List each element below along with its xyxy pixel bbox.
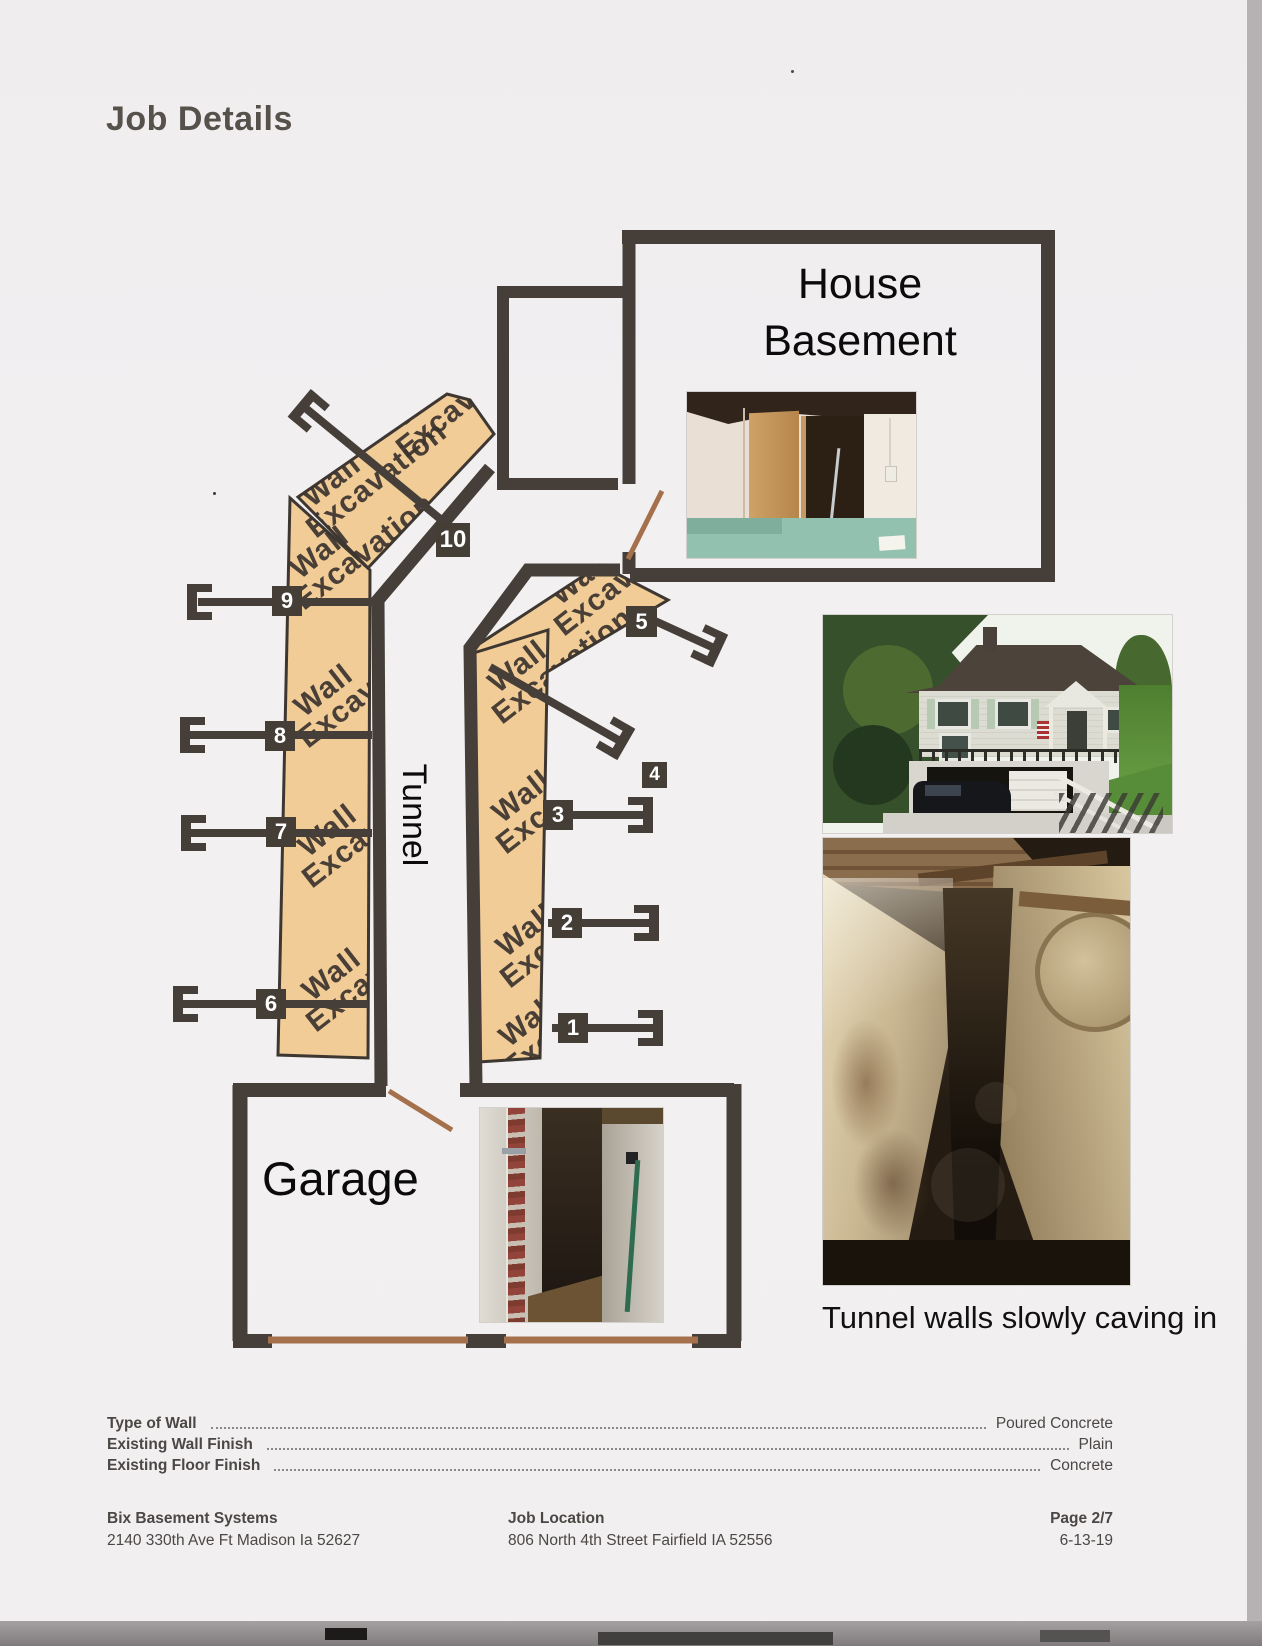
scanned-job-details-page: Job Details Wall Excavation Wall (0, 0, 1262, 1646)
photo-shape-cord (889, 418, 891, 470)
photo-leader-basement (628, 491, 662, 559)
job-location-address: 806 North 4th Street Fairfield IA 52556 (508, 1530, 773, 1552)
wall-anchors (175, 390, 726, 1046)
anchor-marker-3: 3 (543, 800, 573, 830)
photo-shape-beam (602, 1108, 663, 1124)
anchor-marker-10: 10 (436, 523, 470, 557)
detail-label: Type of Wall (107, 1415, 197, 1433)
photo-shape-porch-door (1067, 711, 1087, 751)
photo-shape-floor-object (879, 535, 906, 551)
report-date: 6-13-19 (1050, 1530, 1113, 1552)
scan-speck (213, 492, 216, 495)
photo-shape-wall-stain (853, 1128, 933, 1238)
anchor-marker-5: 5 (626, 606, 657, 637)
footer-company: Bix Basement Systems 2140 330th Ave Ft M… (107, 1508, 360, 1552)
house-basement-label-line2: Basement (690, 313, 1030, 370)
photo-shape-stair-steps (1059, 793, 1163, 833)
tunnel-interior-photo (823, 838, 1130, 1285)
detail-value: Concrete (1050, 1457, 1113, 1475)
tunnel-label: Tunnel (395, 764, 433, 867)
dotted-leader (274, 1469, 1040, 1471)
detail-row-type-of-wall: Type of Wall Poured Concrete (107, 1412, 1113, 1433)
page-number: Page 2/7 (1050, 1508, 1113, 1530)
dotted-leader (211, 1427, 986, 1429)
photo-shape-light-flare (823, 878, 953, 1118)
photo-shape-floor-dark (823, 1240, 1130, 1285)
company-address: 2140 330th Ave Ft Madison Ia 52627 (107, 1530, 360, 1552)
photo-shape-window (995, 699, 1031, 729)
house-basement-label: House Basement (690, 256, 1030, 370)
photo-shape-window (935, 699, 971, 729)
company-name: Bix Basement Systems (107, 1508, 360, 1530)
photo-shape-flag (1037, 721, 1049, 739)
basement-interior-photo (687, 392, 916, 558)
scan-mark (325, 1628, 367, 1640)
tunnel-photo-caption: Tunnel walls slowly caving in (822, 1300, 1222, 1336)
detail-value: Poured Concrete (996, 1415, 1113, 1433)
job-details-list: Type of Wall Poured Concrete Existing Wa… (107, 1412, 1113, 1475)
anchor-marker-4: 4 (642, 762, 667, 788)
scan-mark (1040, 1630, 1110, 1642)
photo-leader-tunnel (389, 1091, 452, 1130)
photo-shape-pipe (506, 1108, 525, 1322)
footer-job-location: Job Location 806 North 4th Street Fairfi… (508, 1508, 773, 1552)
detail-row-existing-floor-finish: Existing Floor Finish Concrete (107, 1454, 1113, 1475)
photo-shape-lens-blob (931, 1148, 1005, 1222)
photo-shape-chimney (983, 627, 997, 651)
photo-shape-pipe-strap (502, 1148, 526, 1154)
garage-label: Garage (262, 1148, 419, 1210)
anchor-marker-8: 8 (265, 721, 295, 751)
photo-shape-lens-blob (975, 1082, 1017, 1124)
photo-shape-wall-corner (743, 408, 745, 520)
house-exterior-photo (823, 615, 1172, 833)
photo-shape-floor-shadow (687, 518, 782, 534)
anchor-marker-9: 9 (272, 586, 302, 616)
photo-shape-porch-post (1049, 707, 1053, 753)
job-location-label: Job Location (508, 1508, 773, 1530)
photo-shape-car-windshield (925, 785, 961, 796)
tunnel-narrow-photo (480, 1108, 663, 1322)
house-basement-label-line1: House (690, 256, 1030, 313)
dotted-leader (267, 1448, 1069, 1450)
photo-shape-porch-post (1103, 707, 1107, 753)
photo-shape-tree-dark (833, 725, 913, 805)
anchor-marker-2: 2 (552, 908, 582, 938)
detail-label: Existing Floor Finish (107, 1457, 260, 1475)
anchor-marker-1: 1 (558, 1013, 588, 1043)
small-room-walls (503, 292, 633, 484)
anchor-marker-6: 6 (256, 989, 286, 1019)
scan-mark (598, 1632, 833, 1645)
scan-edge-right (1247, 0, 1262, 1646)
footer-page-info: Page 2/7 6-13-19 (1050, 1508, 1113, 1552)
detail-value: Plain (1079, 1436, 1113, 1454)
detail-label: Existing Wall Finish (107, 1436, 253, 1454)
anchor-marker-7: 7 (266, 817, 296, 847)
detail-row-existing-wall-finish: Existing Wall Finish Plain (107, 1433, 1113, 1454)
scan-speck (791, 70, 794, 73)
photo-shape-outlet-box (885, 466, 897, 482)
